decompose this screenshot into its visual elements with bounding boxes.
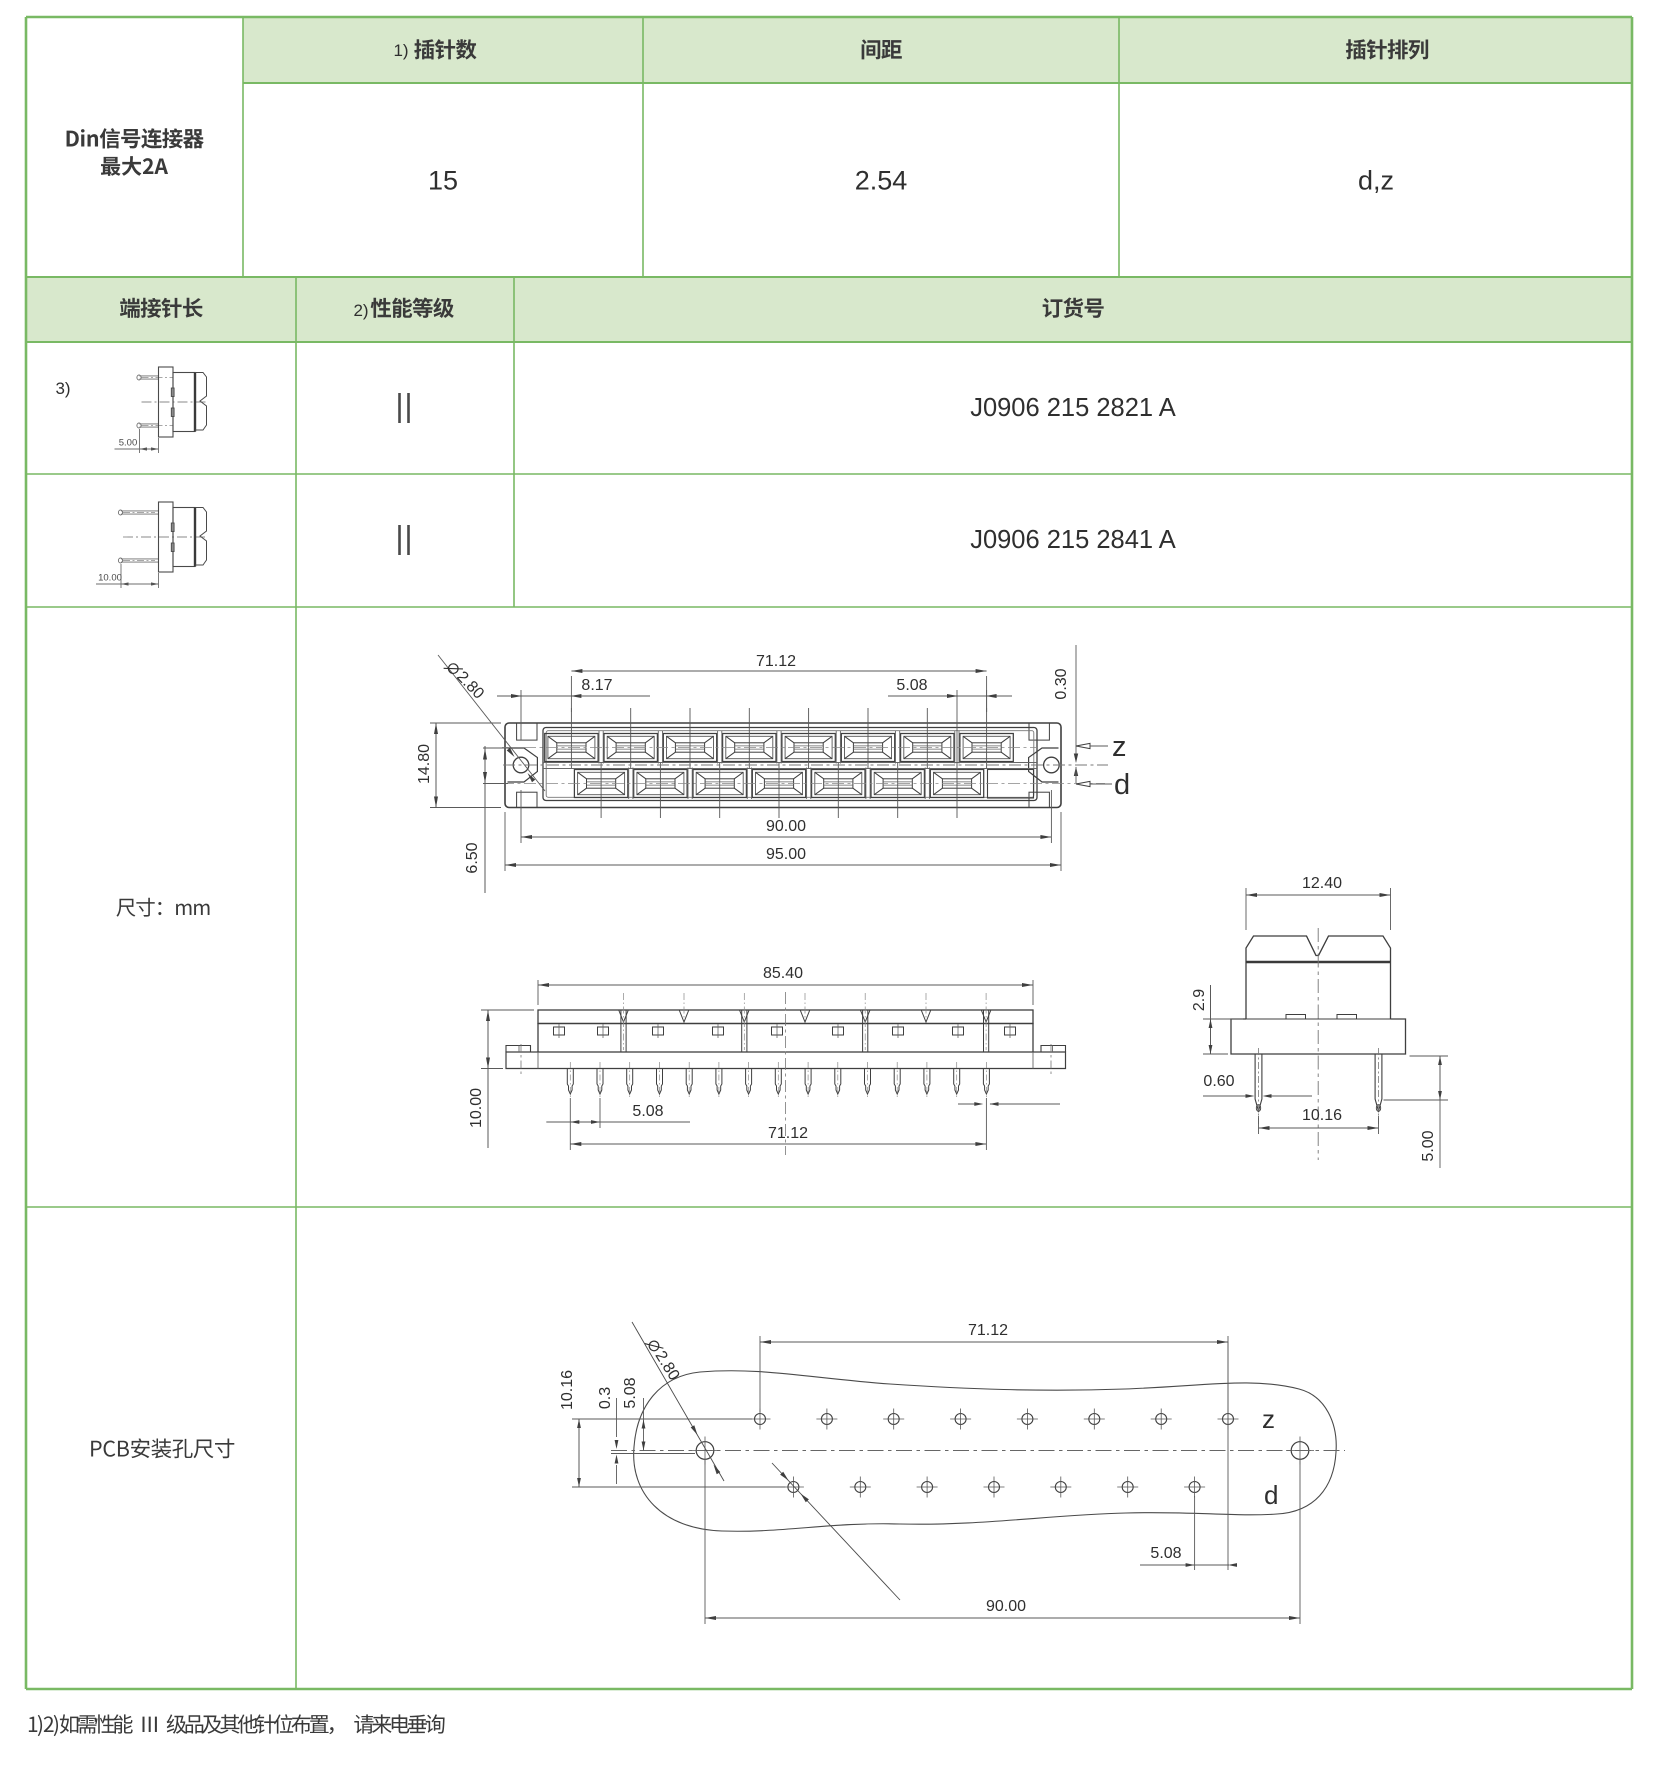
svg-text:2.54: 2.54 [855,166,908,196]
svg-text:1): 1) [393,41,408,60]
svg-text:85.40: 85.40 [763,965,803,982]
svg-text:5.08: 5.08 [896,677,927,694]
svg-text:8.17: 8.17 [581,677,612,694]
svg-text:d: d [1114,769,1130,801]
svg-text:d,z: d,z [1358,166,1394,196]
svg-text:71.12: 71.12 [968,1322,1008,1339]
svg-text:z: z [1112,731,1127,763]
svg-text:14.80: 14.80 [416,744,433,784]
svg-text:J0906 215 2841 A: J0906 215 2841 A [970,526,1176,554]
svg-text:71.12: 71.12 [756,653,796,670]
svg-text:3): 3) [55,379,70,398]
svg-text:0.30: 0.30 [1053,668,1070,699]
svg-text:10.16: 10.16 [1302,1107,1342,1124]
svg-text:0.60: 0.60 [1203,1073,1234,1090]
svg-text:5.08: 5.08 [622,1377,639,1408]
svg-text:10.00: 10.00 [98,573,122,584]
svg-text:5.08: 5.08 [632,1103,663,1120]
svg-text:10.00: 10.00 [468,1088,485,1128]
svg-text:95.00: 95.00 [766,846,806,863]
svg-text:90.00: 90.00 [986,1598,1026,1615]
svg-text:5.00: 5.00 [1420,1130,1437,1161]
svg-text:5.08: 5.08 [1150,1545,1181,1562]
svg-text:15: 15 [428,166,458,196]
svg-text:12.40: 12.40 [1302,875,1342,892]
svg-text:71.12: 71.12 [768,1125,808,1142]
svg-text:d: d [1264,1480,1278,1510]
svg-text:0.3: 0.3 [597,1387,614,1409]
svg-text:90.00: 90.00 [766,818,806,835]
svg-text:2.9: 2.9 [1191,989,1208,1011]
svg-text:5.00: 5.00 [119,438,138,449]
svg-text:6.50: 6.50 [464,842,481,873]
svg-text:z: z [1262,1404,1275,1434]
svg-text:J0906 215 2821 A: J0906 215 2821 A [970,394,1176,422]
svg-text:10.16: 10.16 [559,1370,576,1410]
svg-text:2): 2) [353,301,368,320]
